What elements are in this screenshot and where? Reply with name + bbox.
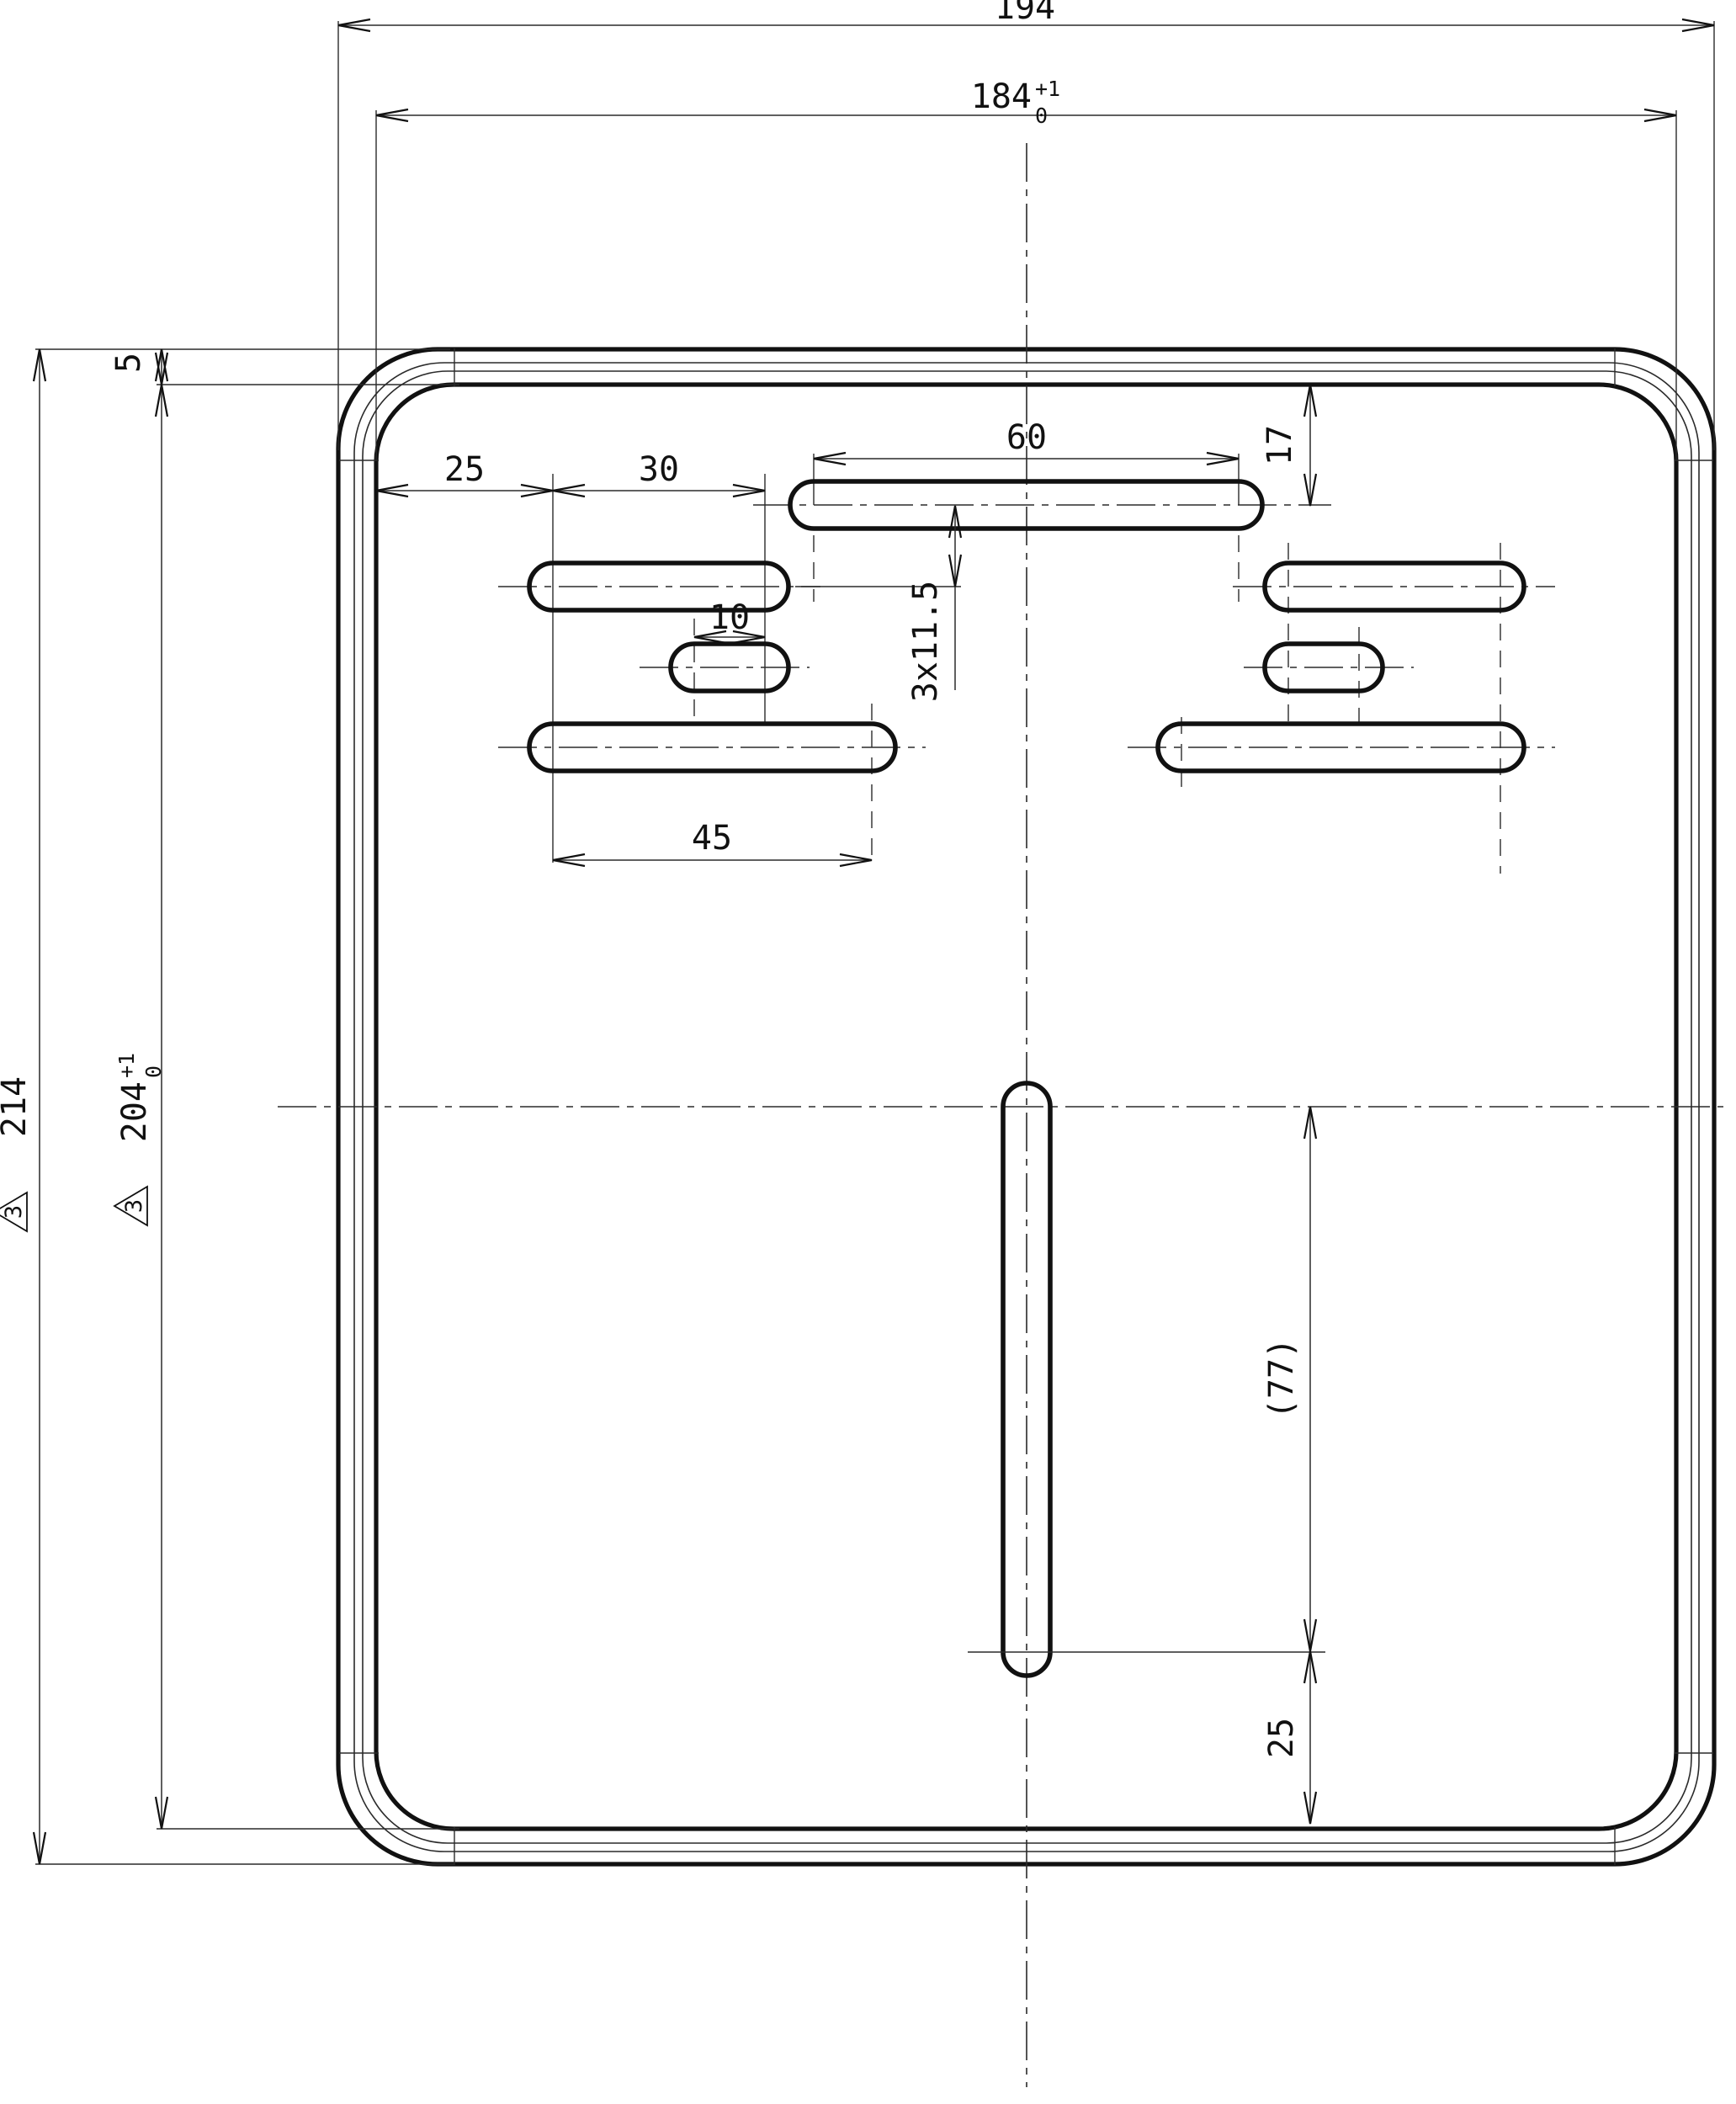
revision-flag-number: 3 [121,1199,147,1213]
dim-overall-width-label: 194 [995,0,1055,27]
revision-flag-number: 3 [1,1205,27,1219]
dim-inner-width-label: 184 +1 0 [971,77,1060,128]
tolerance-upper: +1 [1035,77,1060,101]
dim-slot-step-label: 30 [639,450,679,489]
svg-text:25: 25 [1262,1718,1301,1758]
extension-lines [35,21,1714,1864]
svg-text:(77): (77) [1262,1338,1301,1419]
dim-small-slot-label: 10 [709,598,750,637]
dimension-lines [40,25,1714,1864]
svg-text:184: 184 [971,77,1032,116]
dim-row-pitch-label: 3x11.5 [906,581,945,703]
dim-top-slot-edge-label: 17 [1261,425,1299,465]
plate-drawing: 194 184 +1 0 214 3 204 +1 0 3 5 60 17 25… [0,0,1736,2104]
tolerance-lower: 0 [1035,104,1048,128]
dim-left-margin-label: 25 [444,450,485,489]
svg-text:204: 204 [115,1081,154,1142]
dim-center-slot-bottom-label: 25 [1262,1718,1301,1758]
center-lines [278,143,1723,2087]
svg-text:5: 5 [109,353,148,373]
tolerance-lower: 0 [141,1065,166,1078]
dim-inner-height-label: 204 +1 0 3 [114,1053,166,1225]
tolerance-upper: +1 [114,1053,139,1078]
svg-text:3x11.5: 3x11.5 [906,581,945,703]
dim-lower-slot-label: 45 [692,819,732,858]
technical-drawing-canvas: 194 184 +1 0 214 3 204 +1 0 3 5 60 17 25… [0,0,1736,2104]
dim-top-slot-length-label: 60 [1006,418,1047,457]
svg-text:214: 214 [0,1076,34,1137]
dim-center-slot-length-label: (77) [1262,1338,1301,1419]
dim-rim-offset-label: 5 [109,353,148,373]
svg-text:17: 17 [1261,425,1299,465]
dim-overall-height-label: 214 3 [0,1076,34,1231]
